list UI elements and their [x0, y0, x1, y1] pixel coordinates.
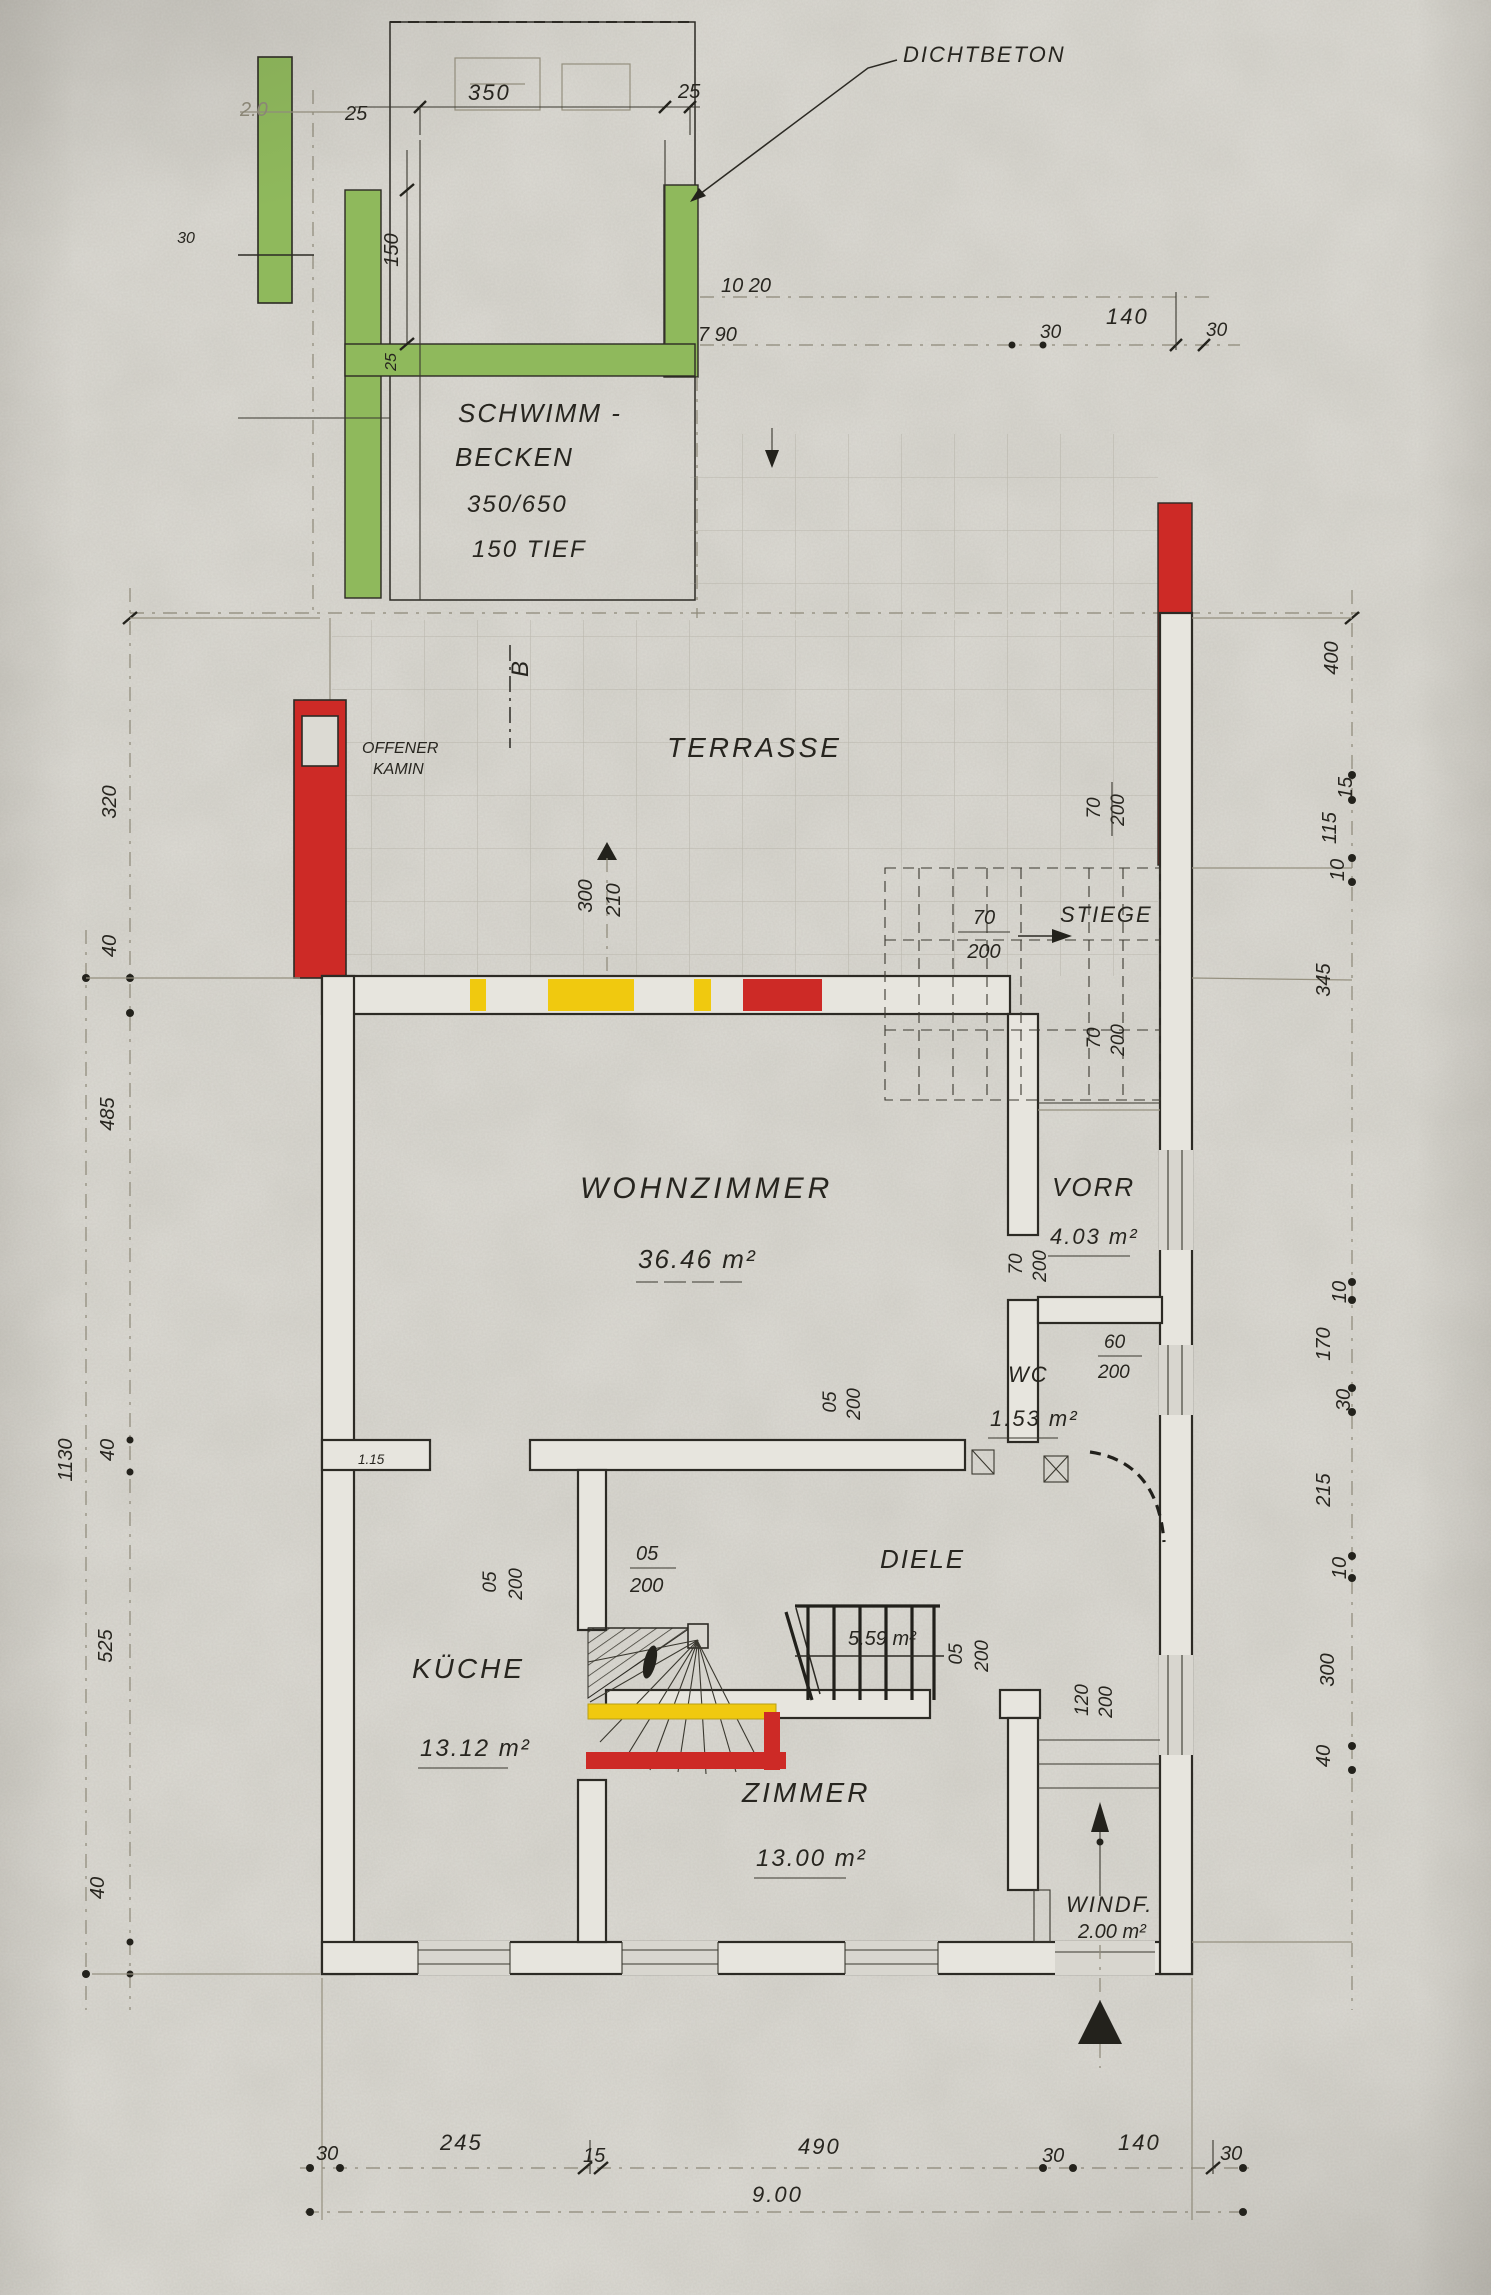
fireplace-label-2: KAMIN	[373, 761, 424, 778]
pool-title-3: 350/650	[467, 491, 568, 518]
right-dim-345: 345	[1313, 962, 1335, 996]
top-dim-30b: 30	[1206, 320, 1228, 341]
wall-south-wohnzimmer-b	[530, 1440, 965, 1470]
zimmer-label: ZIMMER	[741, 1777, 870, 1808]
stair-yellow-band	[588, 1704, 776, 1719]
left-dim-525: 525	[95, 1628, 117, 1662]
section-label-b: B	[507, 659, 534, 677]
stiege-below-70: 70	[1084, 1027, 1105, 1049]
left-dim-40a: 40	[99, 935, 121, 957]
vorr-door-70: 70	[1006, 1253, 1027, 1275]
stair-red-band	[586, 1752, 786, 1769]
right-dim-10c: 10	[1329, 1557, 1351, 1579]
right-dim-115: 115	[1319, 811, 1341, 844]
pool-title-2: BECKEN	[455, 442, 574, 472]
stair-red-post	[764, 1712, 780, 1770]
wall-patch-red	[743, 979, 822, 1011]
window-diele	[1159, 1655, 1193, 1755]
right-dim-15: 15	[1335, 776, 1357, 799]
left-dim-320: 320	[99, 785, 121, 818]
diele-area: 5.59 m²	[848, 1628, 917, 1650]
pool-dim-1020: 10 20	[721, 275, 771, 297]
zimmer-win-120: 120	[1072, 1684, 1093, 1716]
terrace-dim-70: 70	[1084, 797, 1105, 819]
pool-dim-790: 7 90	[698, 324, 737, 346]
left-dim-40c: 40	[87, 1877, 109, 1899]
wall-patch-yellow-2	[548, 979, 634, 1011]
diele-door-05: 05	[636, 1543, 659, 1565]
bottom-dim-30b: 30	[1042, 2145, 1064, 2167]
pool-dim-150: 150	[381, 233, 403, 266]
wz-door-200: 200	[844, 1388, 865, 1421]
right-dim-215: 215	[1313, 1472, 1335, 1507]
pool-dim-20: 2.0	[239, 99, 268, 121]
right-dim-40: 40	[1313, 1745, 1335, 1767]
bottom-total-900: 9.00	[752, 2182, 803, 2207]
vorr-label: VORR	[1052, 1172, 1135, 1202]
fireplace-opening	[302, 716, 338, 766]
pool-dim-350: 350	[468, 80, 511, 105]
window-vorr	[1159, 1150, 1193, 1250]
pool-wall-green-mid	[345, 190, 381, 598]
top-dim-140: 140	[1106, 304, 1149, 329]
terrace-door-w: 300	[575, 879, 597, 912]
entry-door-gap	[1055, 1941, 1155, 1975]
terrace-label: TERRASSE	[667, 732, 842, 763]
terrace-door-h: 210	[603, 883, 625, 917]
scanned-floor-plan: 2.0 25 350 25 150 30 25 SCHWIMM - BECKEN…	[0, 0, 1491, 2295]
wc-label: WC	[1008, 1362, 1049, 1387]
diele-stair-200: 200	[972, 1640, 993, 1673]
wall-kueche-right-a	[578, 1470, 606, 1630]
window-zimmer-2	[845, 1941, 938, 1975]
diele-label: DIELE	[880, 1544, 965, 1574]
right-dim-10b: 10	[1329, 1281, 1351, 1303]
wohnzimmer-label: WOHNZIMMER	[580, 1172, 833, 1205]
diele-stair-05: 05	[946, 1643, 967, 1665]
zimmer-win-200: 200	[1096, 1686, 1117, 1719]
kueche-pass-dim: 1.15	[358, 1452, 385, 1467]
bottom-dim-15: 15	[583, 2145, 606, 2167]
bottom-dim-245: 245	[439, 2130, 483, 2155]
wc-area: 1.53 m²	[990, 1406, 1079, 1431]
window-wc	[1159, 1345, 1193, 1415]
top-dim-30a: 30	[1040, 322, 1062, 343]
vorr-area: 4.03 m²	[1050, 1224, 1139, 1249]
stiege-dim-200: 200	[966, 941, 1000, 963]
zimmer-area: 13.00 m²	[756, 1845, 867, 1872]
bottom-dim-30c: 30	[1220, 2143, 1242, 2165]
right-dim-300: 300	[1317, 1653, 1339, 1686]
wall-zimmer-diele-b	[1000, 1690, 1040, 1718]
bottom-dim-140: 140	[1118, 2130, 1161, 2155]
diele-door-200: 200	[629, 1575, 663, 1597]
floor-plan-drawing: 2.0 25 350 25 150 30 25 SCHWIMM - BECKEN…	[0, 0, 1491, 2295]
wall-right-outer	[1160, 613, 1192, 1974]
wohnzimmer-area: 36.46 m²	[638, 1244, 757, 1274]
pool-title-1: SCHWIMM -	[458, 398, 622, 428]
wall-vorr-wc	[1038, 1297, 1162, 1323]
bottom-dim-490: 490	[798, 2134, 841, 2159]
pool-title-4: 150 TIEF	[472, 536, 587, 563]
vorr-door-200: 200	[1030, 1250, 1051, 1283]
wall-left-outer	[322, 976, 354, 1974]
bottom-dim-30a: 30	[316, 2143, 338, 2165]
kueche-label: KÜCHE	[412, 1653, 525, 1684]
wall-kueche-right-b	[578, 1780, 606, 1942]
kueche-door-200: 200	[506, 1568, 527, 1601]
wall-patch-yellow-1	[470, 979, 486, 1011]
terrace-dim-200: 200	[1108, 794, 1129, 827]
wall-zimmer-windf	[1008, 1718, 1038, 1890]
right-dim-170: 170	[1313, 1327, 1335, 1360]
fireplace-label-1: OFFENER	[362, 740, 439, 757]
dichtbeton-label: DICHTBETON	[903, 42, 1066, 67]
stiege-below-200: 200	[1108, 1024, 1129, 1057]
right-dim-400: 400	[1321, 641, 1343, 674]
left-dim-485: 485	[97, 1096, 119, 1130]
pool-dim-25-slab: 25	[383, 353, 400, 372]
wall-wohnzimmer-vorr-a	[1008, 1014, 1038, 1235]
stiege-dim-70: 70	[973, 907, 995, 929]
pool-dim-30: 30	[177, 230, 195, 247]
right-dim-30: 30	[1333, 1389, 1355, 1411]
left-dim-40b: 40	[97, 1439, 119, 1461]
wall-patch-yellow-3	[694, 979, 711, 1011]
wc-win-60: 60	[1104, 1332, 1126, 1353]
windf-label: WINDF.	[1066, 1892, 1153, 1917]
stiege-label: STIEGE	[1060, 902, 1153, 927]
kueche-door-05: 05	[480, 1571, 501, 1593]
left-total-1130: 1130	[55, 1438, 77, 1481]
pool-dim-25-right: 25	[677, 81, 701, 103]
window-zimmer-1	[622, 1941, 718, 1975]
windf-area: 2.00 m²	[1077, 1921, 1147, 1943]
terrace-tiles-upper	[690, 434, 1158, 618]
pool-dim-25-left: 25	[344, 103, 368, 125]
wz-door-05: 05	[820, 1391, 841, 1413]
window-kueche	[418, 1941, 510, 1975]
kueche-area: 13.12 m²	[420, 1735, 531, 1762]
terrace-tiles	[332, 620, 1158, 976]
pool-wall-green-left	[258, 57, 292, 303]
right-dim-10a: 10	[1327, 859, 1349, 881]
wc-win-200: 200	[1097, 1362, 1130, 1383]
wall-north-wohnzimmer	[322, 976, 1010, 1014]
